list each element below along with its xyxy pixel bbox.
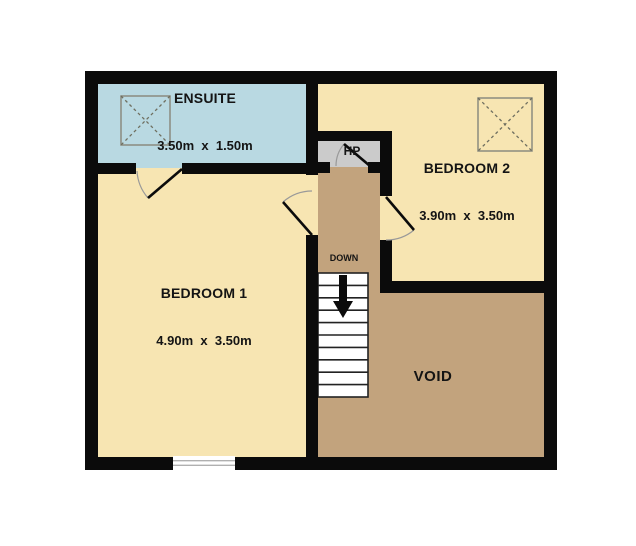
ensuite-dimensions: 3.50m x 1.50m — [157, 138, 252, 154]
window-frame — [173, 456, 235, 470]
void-label: VOID — [414, 369, 453, 385]
window — [173, 456, 235, 470]
bedroom1-label: BEDROOM 1 4.90m x 3.50m — [156, 253, 251, 381]
wall-ensuite-bottom-left — [98, 163, 136, 174]
wall-bedroom1-right — [306, 235, 318, 457]
wall-outer-left — [85, 71, 98, 470]
wall-outer-top — [85, 71, 557, 84]
stairs-down-label: DOWN — [330, 253, 359, 263]
floor-plan: ENSUITE 3.50m x 1.50m BEDROOM 2 3.90m x … — [0, 0, 636, 546]
ensuite-name: ENSUITE — [157, 90, 252, 106]
wall-outer-right — [544, 71, 557, 470]
bedroom2-name: BEDROOM 2 — [419, 160, 514, 176]
wall-landing-right-upper — [380, 131, 392, 196]
wall-outer-bottom — [85, 457, 557, 470]
wall-hp-bottom-left — [306, 162, 330, 173]
ensuite-label: ENSUITE 3.50m x 1.50m — [157, 58, 252, 186]
hp-label: HP — [344, 143, 361, 159]
staircase — [318, 273, 368, 397]
wall-void-top — [380, 281, 544, 293]
bedroom2-dimensions: 3.90m x 3.50m — [419, 208, 514, 224]
bedroom1-dimensions: 4.90m x 3.50m — [156, 333, 251, 349]
wall-ensuite-right — [306, 84, 318, 175]
bedroom2-label: BEDROOM 2 3.90m x 3.50m — [419, 128, 514, 256]
bedroom1-name: BEDROOM 1 — [156, 285, 251, 301]
floor-plan-drawing — [0, 0, 636, 546]
